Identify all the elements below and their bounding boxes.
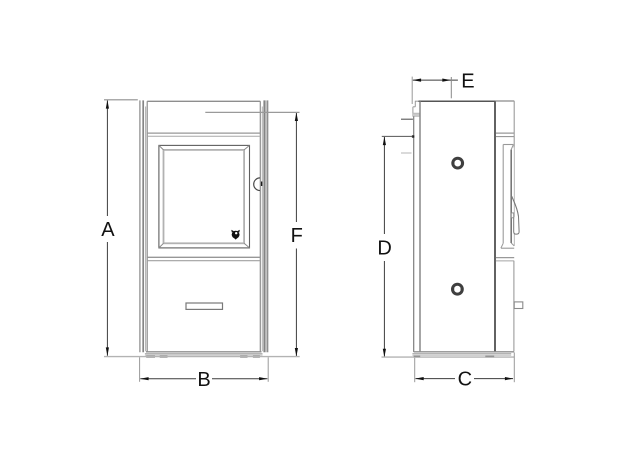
svg-text:B: B	[197, 369, 210, 391]
svg-text:D: D	[377, 238, 391, 260]
svg-text:C: C	[458, 369, 472, 391]
svg-text:A: A	[101, 219, 115, 241]
svg-text:E: E	[461, 71, 474, 93]
svg-text:F: F	[291, 225, 303, 247]
